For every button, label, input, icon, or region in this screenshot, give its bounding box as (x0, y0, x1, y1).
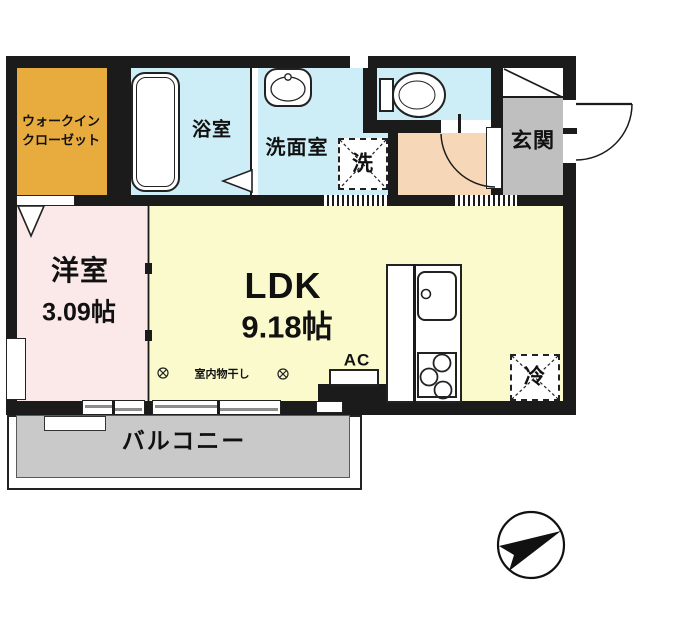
window-sash (155, 405, 218, 408)
washroom-threshold (322, 195, 388, 206)
closet-door-opening (16, 195, 75, 206)
shoe-cabinet (503, 66, 563, 98)
ldk-size: 9.18帖 (241, 312, 332, 343)
balcony-label: バルコニー (122, 430, 247, 453)
left-wall-window (6, 338, 26, 400)
toilet-door-opening (441, 120, 491, 133)
walk-in-closet-room (16, 66, 107, 196)
walk-in-closet-label-line2: クローゼット (22, 134, 100, 147)
refrigerator-label: 冷 (524, 367, 546, 388)
ac-label: AC (344, 352, 371, 369)
toilet-room (377, 66, 491, 120)
balcony-hatch (44, 416, 106, 431)
toilet-tank-icon (379, 78, 394, 112)
bathroom-label: 浴室 (192, 121, 232, 140)
window-meeting-stile (217, 401, 220, 414)
window-sash (85, 405, 113, 408)
window-meeting-stile (112, 401, 115, 414)
ldk-name: LDK (245, 268, 322, 304)
stove-icon (417, 352, 457, 398)
toilet-door-leaf (486, 127, 502, 189)
window-sash (114, 408, 142, 411)
bathtub-icon (131, 72, 180, 192)
wall-notch (316, 401, 343, 413)
floor-plan: ウォークイン クローゼット 浴室 洗面室 洗 玄関 洋室 3.09帖 LDK 9… (0, 0, 700, 628)
compass-icon (498, 512, 564, 578)
washroom-label: 洗面室 (266, 138, 329, 158)
washbasin-icon (264, 68, 312, 107)
top-wall-vent (350, 56, 368, 68)
western-room-size: 3.09帖 (42, 301, 116, 326)
wall-toilet-bottom (363, 120, 441, 133)
kitchen-counter-divider (413, 264, 416, 403)
toilet-door-stop (458, 114, 461, 133)
walk-in-closet-label-line1: ウォークイン (22, 115, 100, 128)
western-room-name: 洋室 (51, 257, 109, 285)
entrance-door-arc (576, 104, 632, 160)
kitchen-sink-icon (417, 271, 457, 321)
entrance-step (453, 195, 517, 206)
wall-wic-right (107, 56, 131, 206)
ac-unit-box (329, 369, 379, 386)
bathtub-inner-line (136, 77, 175, 187)
window-sash (219, 408, 278, 411)
indoor-drying-label: 室内物干し (195, 370, 250, 381)
laundry-label: 洗 (352, 154, 374, 175)
entrance-label: 玄関 (511, 131, 555, 152)
entrance-door-stop (563, 128, 577, 134)
wall-laundry-right (388, 133, 398, 206)
